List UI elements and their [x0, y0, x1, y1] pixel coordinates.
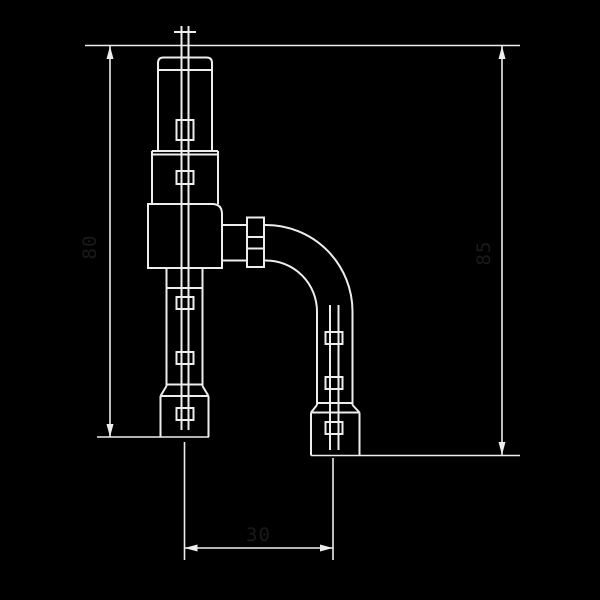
- bottom-dimension-arrow-right: [320, 545, 333, 552]
- stem-collar-1: [177, 120, 194, 140]
- bonnet-outline: [158, 58, 212, 152]
- elbow-nut-outline: [247, 218, 264, 268]
- left-fitting-chamfer-right: [203, 386, 209, 396]
- right-stem-collar-1: [326, 332, 343, 344]
- valve-assembly: [148, 26, 222, 437]
- bottom-dimension-arrow-left: [185, 545, 198, 552]
- left-dimension-arrow-up: [107, 46, 114, 59]
- elbow-inner-arc: [264, 261, 317, 312]
- dimension-framework: [85, 46, 520, 561]
- body-outline: [148, 204, 222, 268]
- right-fitting-chamfer-left: [311, 405, 317, 413]
- right-height-label: 85: [473, 241, 495, 266]
- stem-collar-4: [177, 352, 194, 364]
- stem-collar-2: [177, 171, 194, 184]
- stem-collar-5: [177, 408, 194, 420]
- left-dimension-arrow-down: [107, 424, 114, 437]
- left-height-label: 80: [79, 235, 101, 260]
- dimension-labels: 80 85 30: [79, 235, 495, 546]
- left-fitting-chamfer-left: [161, 386, 167, 396]
- elbow-branch: [222, 218, 360, 456]
- bottom-width-label: 30: [246, 524, 271, 546]
- stem-collar-3: [177, 297, 194, 309]
- elbow-outer-arc: [264, 225, 353, 312]
- right-dimension-arrow-down: [499, 442, 506, 455]
- right-stem-collar-3: [326, 422, 343, 434]
- technical-drawing-canvas: 80 85 30: [0, 0, 600, 600]
- right-dimension-arrow-up: [499, 46, 506, 59]
- right-fitting-chamfer-right: [353, 405, 360, 413]
- right-stem-collar-2: [326, 377, 343, 389]
- technical-drawing-page: 80 85 30: [0, 0, 600, 600]
